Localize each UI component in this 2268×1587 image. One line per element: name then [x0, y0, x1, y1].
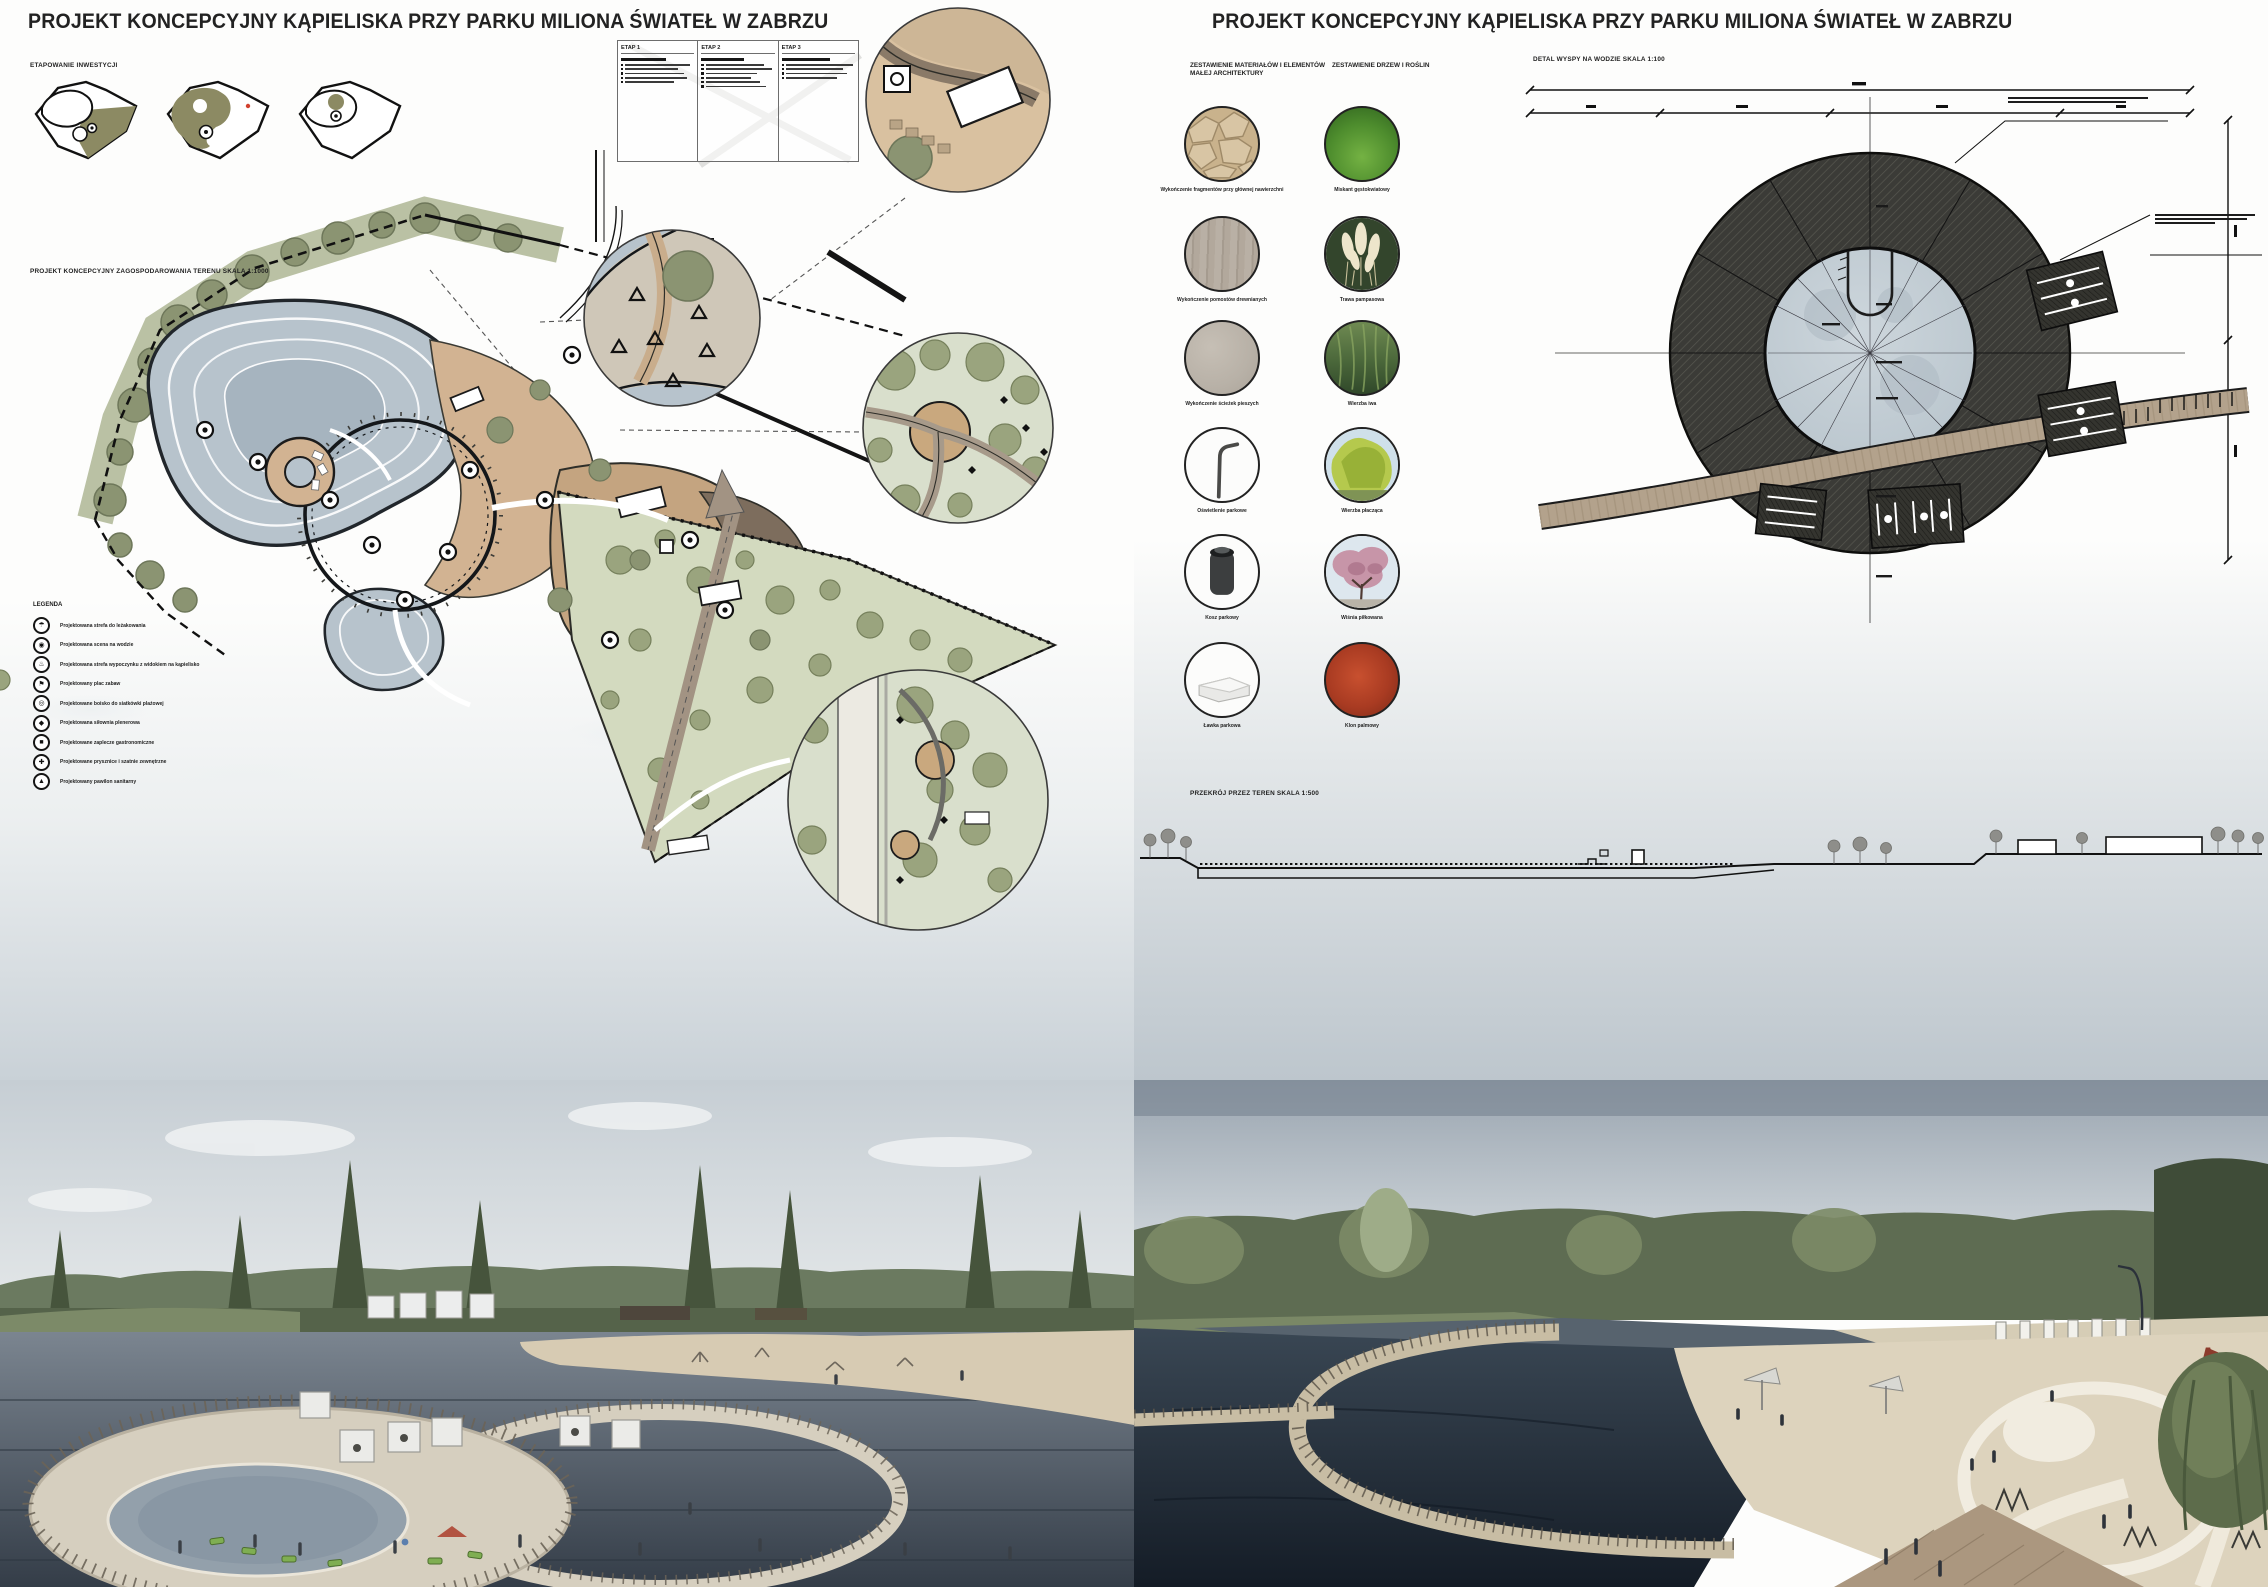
page-title-right: PROJEKT KONCEPCYJNY KĄPIELISKA PRZY PARK… [1212, 10, 2012, 34]
showers-icon: ✚ [33, 754, 50, 771]
concrete-swatch-image [1184, 320, 1260, 396]
legend-item-label: Projektowany pawilon sanitarny [60, 779, 136, 785]
swatch-caption: Miskant gęstokwiatowy [1292, 187, 1432, 194]
stage-3-diagram [300, 82, 400, 158]
park-lamp-swatch: Oświetlenie parkowe [1152, 427, 1292, 515]
legend-item-label: Projektowane zaplecze gastronomiczne [60, 740, 154, 746]
pampas-grass-swatch-image [1324, 216, 1400, 292]
table-bullet-greek [701, 68, 774, 70]
plan-label: PROJEKT KONCEPCYJNY ZAGOSPODAROWANIA TER… [30, 268, 269, 275]
table-subheader-greek [701, 58, 744, 61]
legend-item: ⚑Projektowany plac zabaw [33, 675, 333, 695]
render-right-visualization [1134, 1080, 2268, 1587]
materials-header: ZESTAWIENIE MATERIAŁÓW I ELEMENTÓW MAŁEJ… [1190, 62, 1340, 79]
swatch-caption: Wykończenie pomostów drewnianych [1152, 297, 1292, 304]
page-title-left: PROJEKT KONCEPCYJNY KĄPIELISKA PRZY PARK… [28, 10, 828, 34]
ornamental-grass-swatch: Miskant gęstokwiatowy [1292, 106, 1432, 194]
swatch-caption: Wierzba iwa [1292, 401, 1432, 408]
table-bullet-greek [701, 77, 774, 79]
section-buildings [1632, 837, 2202, 864]
legend-item: ☂Projektowana strefa do leżakowania [33, 616, 333, 636]
stage-1-diagram [36, 82, 136, 158]
table-subheader-greek [782, 58, 830, 61]
legend-item: ▲Projektowany pawilon sanitarny [33, 772, 333, 792]
park-lamp-swatch-image [1184, 427, 1260, 503]
legend-item-label: Projektowana siłownia plenerowa [60, 720, 140, 726]
staging-label: ETAPOWANIE INWESTYCJI [30, 62, 118, 69]
cherry-swatch-image [1324, 534, 1400, 610]
legend-item-label: Projektowane prysznice i szatnie zewnętr… [60, 759, 166, 765]
legend-item-label: Projektowana scena na wodzie [60, 642, 133, 648]
swatch-caption: Wykończenie fragmentów przy głównej nawi… [1152, 187, 1292, 194]
concrete-swatch: Wykończenie ścieżek pieszych [1152, 320, 1292, 408]
water-stage-icon: ◉ [33, 637, 50, 654]
table-bullet-greek [701, 81, 774, 83]
swatch-caption: Oświetlenie parkowe [1152, 508, 1292, 515]
detail-circle-paving [866, 8, 1050, 192]
swatch-caption: Wiśnia piłkowana [1292, 615, 1432, 622]
bench-swatch: Ławka parkowa [1152, 642, 1292, 730]
pampas-grass-swatch: Trawa pampasowa [1292, 216, 1432, 304]
litter-bin-swatch-image [1184, 534, 1260, 610]
render-right-treeline [1134, 1200, 2268, 1320]
stages-table-column: ETAP 3 [779, 41, 858, 161]
swatch-caption: Trawa pampasowa [1292, 297, 1432, 304]
render-left-visualization [0, 1080, 1134, 1587]
island-detail-drawing [1500, 55, 2268, 645]
swatch-caption: Wykończenie ścieżek pieszych [1152, 401, 1292, 408]
bench-swatch-image [1184, 642, 1260, 718]
stages-table: ETAP 1ETAP 2ETAP 3 [617, 40, 859, 162]
legend-item: ◉Projektowana scena na wodzie [33, 636, 333, 656]
detail-circle-greenery [863, 333, 1053, 523]
section-trees [1144, 827, 2264, 864]
table-bullet-greek [701, 64, 774, 66]
litter-bin-swatch: Kosz parkowy [1152, 534, 1292, 622]
legend-item-label: Projektowane boisko do siatkówki plażowe… [60, 701, 164, 707]
willow-swatch: Wierzba iwa [1292, 320, 1432, 408]
table-bullet-greek [621, 77, 694, 79]
tall-pale-tree [1360, 1188, 1412, 1272]
table-bullet-greek [782, 72, 855, 74]
plants-header: ZESTAWIENIE DRZEW I ROŚLIN [1332, 62, 1472, 70]
table-bullet-greek [701, 72, 774, 74]
table-bullet-greek [701, 85, 774, 87]
legend-item: ◆Projektowana siłownia plenerowa [33, 714, 333, 734]
table-bullet-greek [621, 68, 694, 70]
swatch-caption: Klon palmowy [1292, 723, 1432, 730]
table-bullet-greek [782, 77, 855, 79]
lounger-zone-icon: ☂ [33, 617, 50, 634]
legend-item-label: Projektowana strefa wypoczynku z widokie… [60, 662, 200, 668]
playground-icon: ⚑ [33, 676, 50, 693]
swatch-caption: Wierzba płacząca [1292, 508, 1432, 515]
stages-table-column: ETAP 2 [698, 41, 778, 161]
volleyball-icon: ◎ [33, 695, 50, 712]
flagstone-swatch-image [1184, 106, 1260, 182]
swatch-caption: Ławka parkowa [1152, 723, 1292, 730]
ornamental-grass-swatch-image [1324, 106, 1400, 182]
stage-column-header: ETAP 3 [782, 43, 855, 54]
table-subheader-greek [621, 58, 666, 61]
flagstone-swatch: Wykończenie fragmentów przy głównej nawi… [1152, 106, 1292, 194]
wood-plank-swatch: Wykończenie pomostów drewnianych [1152, 216, 1292, 304]
legend-item-label: Projektowana strefa do leżakowania [60, 623, 146, 629]
legend-item: ♨Projektowana strefa wypoczynku z widoki… [33, 655, 333, 675]
table-bullet-greek [782, 64, 855, 66]
table-bullet-greek [621, 64, 694, 66]
table-bullet-greek [621, 81, 694, 83]
terrain-section-drawing [1134, 810, 2268, 920]
pavilion-icon: ▲ [33, 773, 50, 790]
red-maple-swatch: Klon palmowy [1292, 642, 1432, 730]
red-maple-swatch-image [1324, 642, 1400, 718]
legend-item: ✚Projektowane prysznice i szatnie zewnęt… [33, 753, 333, 773]
table-bullet-greek [621, 72, 694, 74]
stage-column-header: ETAP 1 [621, 43, 694, 54]
willow-swatch-image [1324, 320, 1400, 396]
weeping-willow-swatch: Wierzba płacząca [1292, 427, 1432, 515]
detail-circle-tents [584, 230, 760, 406]
weeping-willow-swatch-image [1324, 427, 1400, 503]
legend-title: LEGENDA [33, 602, 333, 608]
gastronomy-icon: ■ [33, 734, 50, 751]
staging-diagrams [28, 76, 408, 168]
table-bullet-greek [782, 68, 855, 70]
stage-column-header: ETAP 2 [701, 43, 774, 54]
stages-table-column: ETAP 1 [618, 41, 698, 161]
wood-plank-swatch-image [1184, 216, 1260, 292]
legend-item: ◎Projektowane boisko do siatkówki plażow… [33, 694, 333, 714]
legend-item-label: Projektowany plac zabaw [60, 681, 120, 687]
outdoor-gym-icon: ◆ [33, 715, 50, 732]
plan-legend: LEGENDA ☂Projektowana strefa do leżakowa… [33, 602, 333, 792]
section-label: PRZEKRÓJ PRZEZ TEREN SKALA 1:500 [1190, 790, 1319, 797]
swatch-caption: Kosz parkowy [1152, 615, 1292, 622]
presentation-board: PROJEKT KONCEPCYJNY KĄPIELISKA PRZY PARK… [0, 0, 2268, 1587]
recreation-zone-icon: ♨ [33, 656, 50, 673]
legend-item: ■Projektowane zaplecze gastronomiczne [33, 733, 333, 753]
cherry-swatch: Wiśnia piłkowana [1292, 534, 1432, 622]
island-annotation-2 [2155, 212, 2265, 226]
island-annotation-1 [2008, 95, 2158, 105]
detail-circle-allee [788, 670, 1048, 930]
stage-2-diagram [168, 82, 268, 158]
